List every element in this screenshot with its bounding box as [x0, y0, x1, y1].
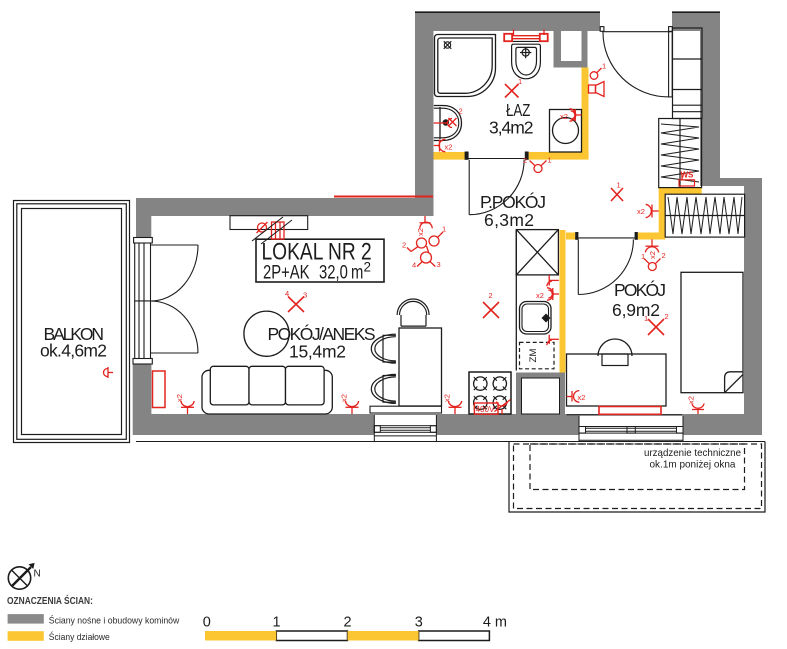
- svg-text:Ściany działowe: Ściany działowe: [49, 631, 110, 643]
- svg-text:2P+AK: 2P+AK: [263, 262, 310, 283]
- svg-text:x2: x2: [445, 143, 453, 152]
- svg-text:2: 2: [523, 156, 527, 165]
- svg-text:x2: x2: [443, 394, 452, 402]
- svg-text:32,0: 32,0: [319, 262, 348, 283]
- svg-text:x2: x2: [416, 228, 425, 236]
- svg-text:1: 1: [272, 615, 280, 631]
- svg-text:3: 3: [303, 291, 307, 300]
- svg-text:1: 1: [518, 77, 522, 86]
- svg-text:1: 1: [442, 225, 446, 234]
- svg-text:2: 2: [459, 107, 463, 116]
- svg-text:2: 2: [489, 291, 493, 300]
- svg-text:x2: x2: [175, 394, 184, 402]
- svg-text:2: 2: [402, 241, 406, 250]
- svg-text:1: 1: [602, 62, 606, 71]
- svg-text:P.POKÓJ: P.POKÓJ: [480, 191, 546, 212]
- svg-text:x2: x2: [687, 396, 696, 404]
- svg-text:m: m: [351, 262, 363, 283]
- svg-text:Ściany nośne i obudowy kominów: Ściany nośne i obudowy kominów: [49, 615, 180, 627]
- svg-text:x2: x2: [578, 393, 586, 402]
- svg-text:N: N: [34, 569, 41, 580]
- svg-text:ok.1m poniżej okna: ok.1m poniżej okna: [650, 459, 736, 471]
- svg-text:x2: x2: [648, 251, 657, 259]
- svg-text:m: m: [495, 615, 507, 631]
- svg-text:3: 3: [437, 260, 441, 269]
- svg-text:6,9m2: 6,9m2: [612, 300, 660, 320]
- svg-text:4: 4: [412, 261, 416, 270]
- svg-text:POKÓJ: POKÓJ: [614, 279, 666, 300]
- svg-text:3: 3: [415, 615, 423, 631]
- svg-text:1: 1: [617, 181, 621, 190]
- svg-text:3,4m2: 3,4m2: [489, 118, 534, 138]
- svg-text:1: 1: [644, 314, 648, 323]
- svg-text:2: 2: [665, 312, 669, 321]
- svg-text:400V: 400V: [476, 405, 495, 414]
- svg-text:x2: x2: [560, 112, 568, 121]
- svg-text:2: 2: [343, 615, 351, 631]
- svg-text:4: 4: [285, 289, 289, 298]
- svg-text:OZNACZENIA ŚCIAN:: OZNACZENIA ŚCIAN:: [7, 594, 93, 606]
- svg-text:6,3m2: 6,3m2: [484, 210, 534, 230]
- svg-text:x2: x2: [637, 207, 645, 216]
- svg-text:4: 4: [483, 615, 491, 631]
- svg-text:15,4m2: 15,4m2: [289, 342, 346, 362]
- svg-text:urządzenie techniczne: urządzenie techniczne: [644, 447, 741, 459]
- svg-text:x2: x2: [536, 291, 544, 300]
- svg-text:2: 2: [364, 260, 372, 275]
- svg-text:1: 1: [641, 252, 645, 261]
- svg-text:1: 1: [548, 156, 552, 165]
- svg-text:WS: WS: [681, 171, 695, 180]
- svg-text:x2: x2: [340, 394, 349, 402]
- svg-text:ok.4,6m2: ok.4,6m2: [40, 341, 107, 361]
- svg-text:0: 0: [203, 615, 211, 631]
- svg-text:ZM: ZM: [528, 349, 539, 363]
- svg-text:2: 2: [662, 251, 666, 260]
